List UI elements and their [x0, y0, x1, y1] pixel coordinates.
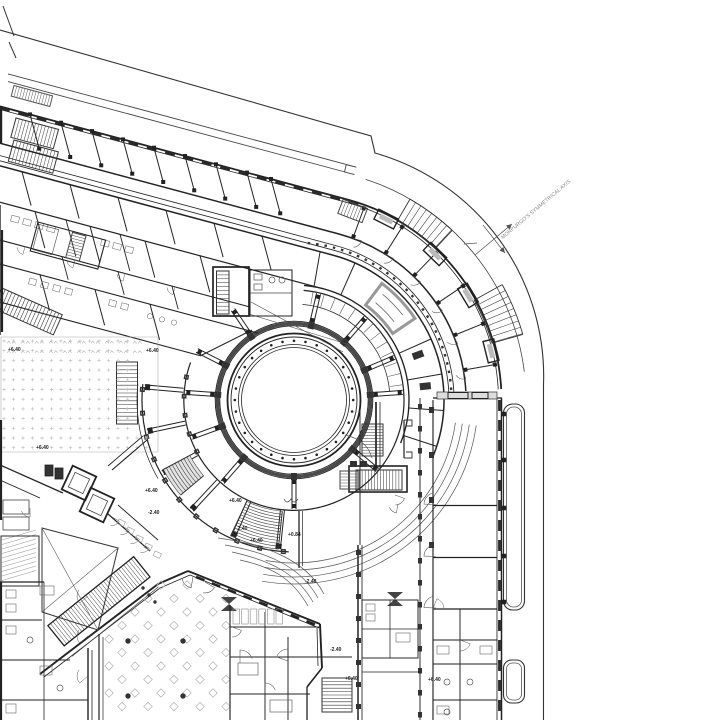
svg-text:-2.40: -2.40: [305, 579, 317, 585]
svg-text:-2.40: -2.40: [148, 510, 160, 516]
svg-text:-2.40: -2.40: [330, 647, 342, 653]
svg-text:+6.40: +6.40: [428, 677, 441, 683]
svg-text:+0.84: +0.84: [288, 532, 301, 538]
svg-text:+6.40: +6.40: [145, 488, 158, 494]
svg-text:+6.40: +6.40: [8, 347, 21, 353]
svg-text:+6.40: +6.40: [229, 498, 242, 504]
svg-text:+6.40: +6.40: [36, 445, 49, 451]
svg-text:+6.40: +6.40: [345, 676, 358, 682]
svg-text:-2.40: -2.40: [236, 526, 248, 532]
svg-text:+6.40: +6.40: [146, 348, 159, 354]
svg-text:+6.40: +6.40: [250, 538, 263, 544]
